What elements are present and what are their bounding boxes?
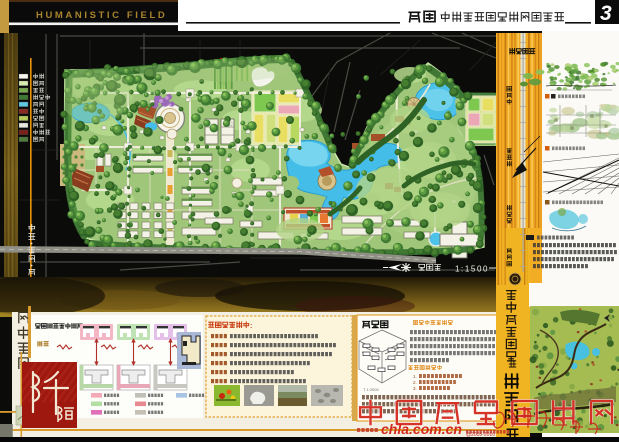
svg-text:HUMANISTIC FIELD: HUMANISTIC FIELD xyxy=(36,10,167,21)
svg-text:T 1:2000: T 1:2000 xyxy=(363,387,379,392)
svg-text:3.: 3. xyxy=(413,386,417,391)
svg-text::: : xyxy=(250,323,252,330)
svg-text:chla.com.cn: chla.com.cn xyxy=(381,421,462,437)
svg-text:2.: 2. xyxy=(413,380,417,385)
svg-text:1:1500: 1:1500 xyxy=(455,265,489,274)
svg-text:1.: 1. xyxy=(413,374,417,379)
svg-text:3: 3 xyxy=(600,2,612,25)
